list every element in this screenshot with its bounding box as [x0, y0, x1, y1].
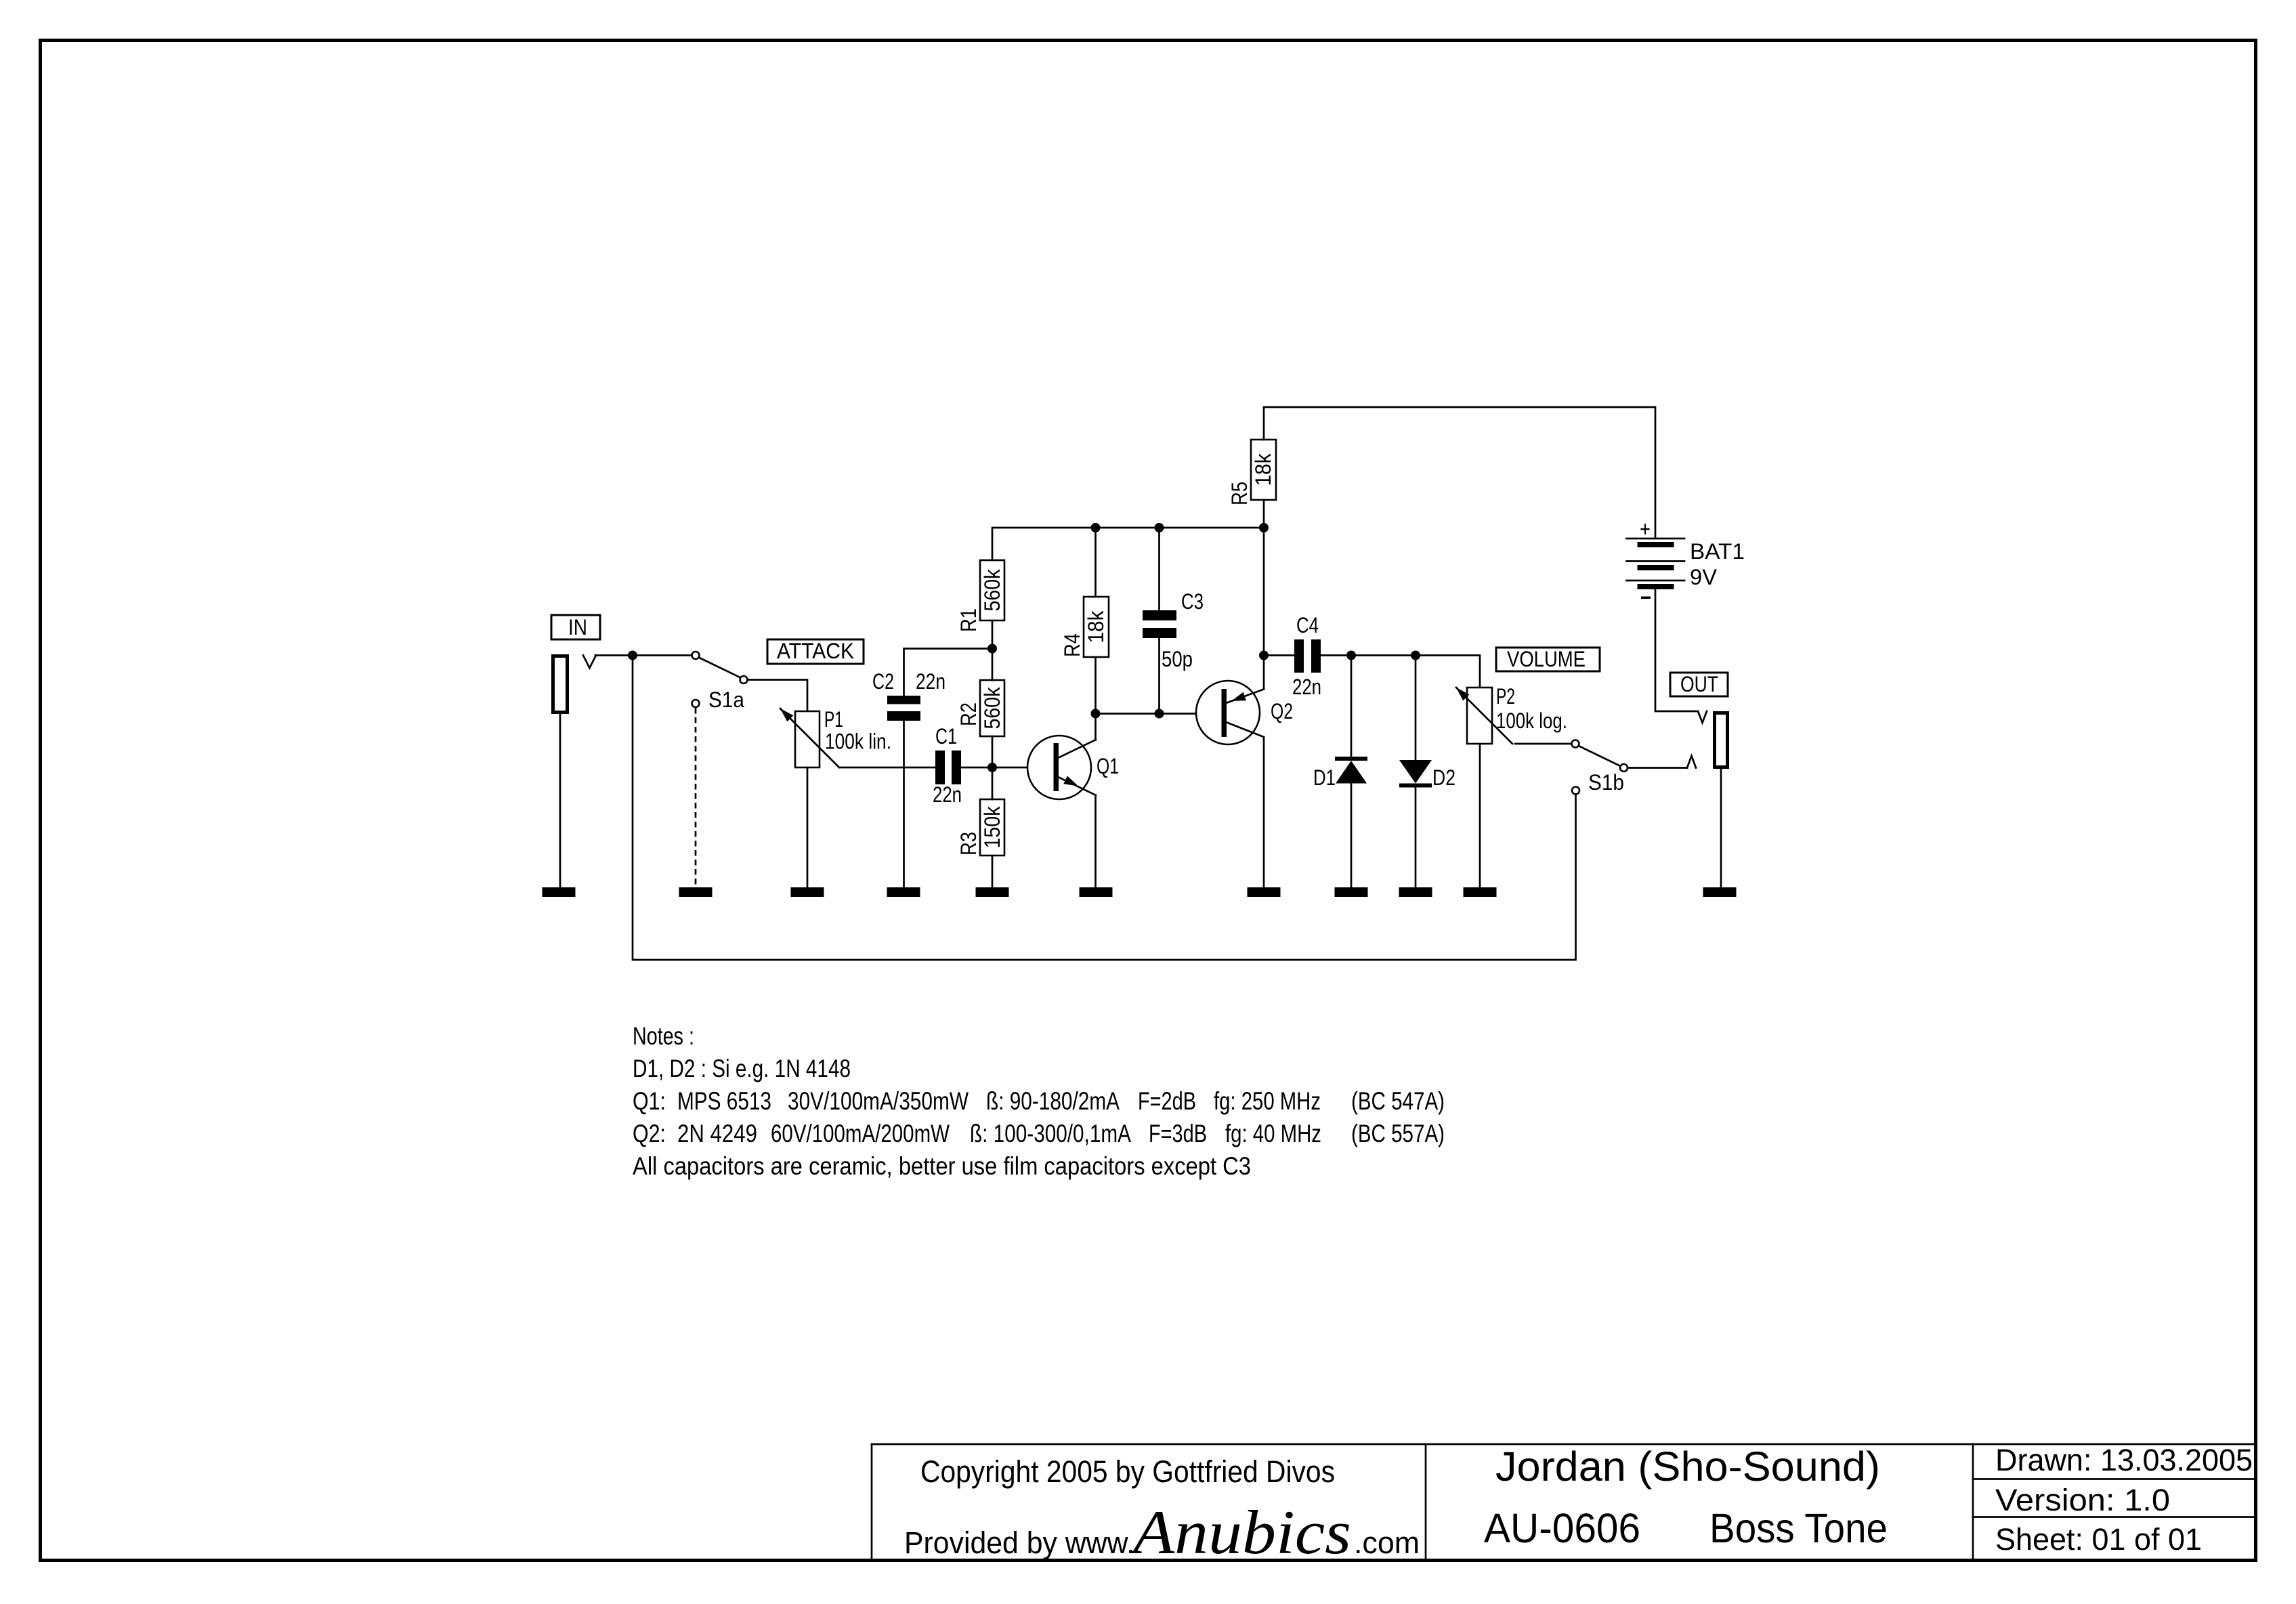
svg-text:ATTACK: ATTACK [777, 639, 854, 663]
svg-text:(BC 557A): (BC 557A) [1351, 1120, 1445, 1147]
svg-text:18k: 18k [1251, 453, 1275, 486]
svg-text:S1a: S1a [708, 688, 744, 712]
svg-text:22n: 22n [1292, 675, 1321, 699]
svg-text:+: + [1640, 517, 1651, 541]
svg-text:D1, D2 : Si e.g. 1N 4148: D1, D2 : Si e.g. 1N 4148 [633, 1055, 851, 1082]
svg-text:MPS 6513: MPS 6513 [677, 1087, 771, 1115]
svg-text:fg: 40 MHz: fg: 40 MHz [1225, 1120, 1321, 1147]
svg-text:22n: 22n [933, 782, 962, 807]
svg-text:Copyright 2005 by Gottfried Di: Copyright 2005 by Gottfried Divos [920, 1454, 1335, 1489]
svg-text:All capacitors are ceramic, be: All capacitors are ceramic, better use f… [633, 1152, 1251, 1180]
svg-text:60V/100mA/200mW: 60V/100mA/200mW [771, 1120, 950, 1147]
svg-text:D1: D1 [1313, 765, 1336, 790]
svg-text:Q1:: Q1: [633, 1087, 666, 1115]
svg-text:22n: 22n [916, 669, 945, 694]
svg-text:Drawn: 13.03.2005: Drawn: 13.03.2005 [1995, 1443, 2253, 1477]
svg-text:18k: 18k [1084, 610, 1108, 643]
svg-text:Anubics: Anubics [1128, 1498, 1351, 1567]
svg-text:F=2dB: F=2dB [1138, 1087, 1196, 1115]
svg-text:ß: 90-180/2mA: ß: 90-180/2mA [986, 1087, 1120, 1115]
svg-text:C2: C2 [872, 669, 894, 694]
svg-text:R5: R5 [1227, 482, 1252, 505]
svg-text:Q1: Q1 [1097, 754, 1119, 778]
svg-text:2N 4249: 2N 4249 [677, 1120, 757, 1147]
svg-text:ß: 100-300/0,1mA: ß: 100-300/0,1mA [970, 1120, 1131, 1147]
svg-text:100k lin.: 100k lin. [825, 730, 891, 754]
svg-text:Sheet: 01 of 01: Sheet: 01 of 01 [1995, 1522, 2202, 1557]
svg-text:Q2: Q2 [1271, 699, 1293, 723]
svg-text:100k log.: 100k log. [1496, 709, 1567, 733]
svg-text:P1: P1 [824, 707, 843, 732]
svg-text:R4: R4 [1060, 633, 1084, 657]
svg-text:150k: 150k [980, 806, 1004, 849]
svg-text:Q2:: Q2: [633, 1120, 666, 1147]
svg-text:AU-0606: AU-0606 [1484, 1505, 1640, 1551]
svg-text:50p: 50p [1162, 647, 1193, 671]
svg-text:Provided by www.: Provided by www. [904, 1525, 1134, 1560]
svg-text:R3: R3 [956, 832, 981, 856]
svg-text:Notes :: Notes : [633, 1022, 694, 1050]
svg-text:Jordan (Sho-Sound): Jordan (Sho-Sound) [1495, 1443, 1880, 1490]
svg-text:R1: R1 [956, 608, 981, 632]
svg-text:9V: 9V [1690, 565, 1718, 589]
svg-text:(BC 547A): (BC 547A) [1351, 1087, 1445, 1115]
svg-text:P2: P2 [1496, 684, 1515, 709]
svg-text:.com: .com [1354, 1525, 1420, 1560]
svg-text:IN: IN [568, 615, 587, 639]
svg-text:C4: C4 [1296, 613, 1319, 637]
svg-text:R2: R2 [956, 702, 981, 726]
svg-text:Boss Tone: Boss Tone [1709, 1505, 1888, 1551]
svg-text:F=3dB: F=3dB [1149, 1120, 1207, 1147]
svg-text:30V/100mA/350mW: 30V/100mA/350mW [788, 1087, 969, 1115]
svg-text:D2: D2 [1432, 765, 1455, 790]
svg-text:560k: 560k [980, 569, 1004, 612]
svg-text:OUT: OUT [1680, 672, 1718, 696]
svg-text:fg: 250 MHz: fg: 250 MHz [1214, 1087, 1321, 1115]
svg-text:C1: C1 [935, 724, 957, 748]
svg-text:BAT1: BAT1 [1690, 539, 1745, 564]
svg-text:VOLUME: VOLUME [1507, 647, 1586, 671]
svg-text:S1b: S1b [1588, 770, 1624, 795]
svg-text:C3: C3 [1181, 589, 1204, 614]
svg-text:Version: 1.0: Version: 1.0 [1995, 1483, 2170, 1517]
svg-text:560k: 560k [980, 687, 1004, 730]
